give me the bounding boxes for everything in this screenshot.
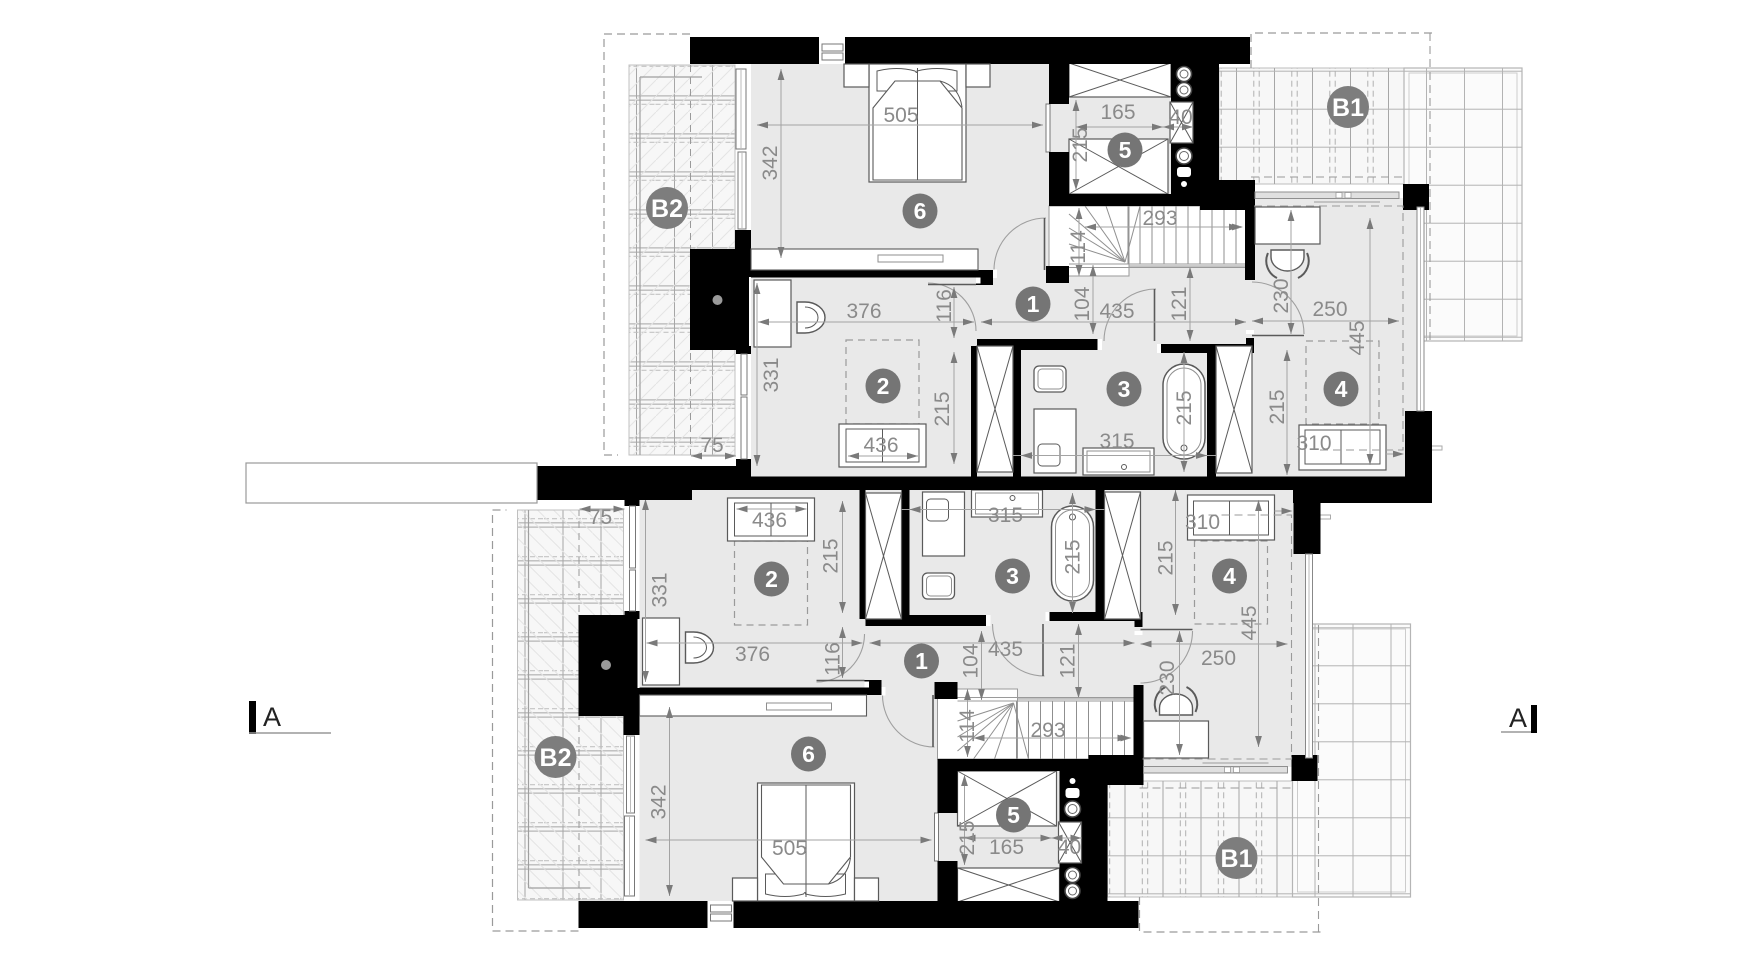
svg-text:315: 315 — [988, 504, 1023, 527]
svg-text:2: 2 — [765, 566, 778, 592]
svg-text:435: 435 — [988, 638, 1023, 661]
svg-text:250: 250 — [1312, 298, 1347, 321]
svg-text:445: 445 — [1346, 320, 1369, 355]
svg-text:215: 215 — [1062, 539, 1085, 574]
svg-text:165: 165 — [989, 836, 1024, 859]
svg-text:114: 114 — [956, 709, 979, 743]
svg-text:342: 342 — [648, 784, 671, 819]
svg-text:116: 116 — [822, 642, 845, 675]
svg-text:40: 40 — [1169, 106, 1192, 129]
svg-text:436: 436 — [752, 509, 787, 532]
svg-text:215: 215 — [1069, 127, 1092, 162]
svg-text:310: 310 — [1185, 511, 1220, 534]
svg-text:293: 293 — [1142, 207, 1177, 230]
svg-text:B1: B1 — [1221, 845, 1253, 873]
svg-text:B1: B1 — [1332, 94, 1364, 122]
svg-text:3: 3 — [1118, 376, 1131, 402]
svg-text:215: 215 — [956, 820, 979, 855]
svg-text:230: 230 — [1156, 660, 1179, 695]
svg-text:75: 75 — [700, 434, 723, 457]
svg-text:376: 376 — [846, 300, 881, 323]
svg-text:505: 505 — [772, 837, 807, 860]
svg-text:315: 315 — [1099, 430, 1134, 453]
svg-text:1: 1 — [915, 648, 928, 674]
svg-text:6: 6 — [914, 198, 927, 224]
svg-text:165: 165 — [1100, 101, 1135, 124]
svg-text:4: 4 — [1223, 563, 1236, 589]
svg-text:215: 215 — [820, 538, 843, 573]
svg-text:376: 376 — [735, 643, 770, 666]
svg-text:331: 331 — [760, 357, 783, 392]
svg-text:342: 342 — [759, 145, 782, 180]
svg-text:116: 116 — [933, 289, 956, 322]
svg-text:75: 75 — [589, 506, 612, 529]
svg-text:A: A — [1509, 703, 1527, 733]
svg-text:6: 6 — [802, 741, 815, 767]
svg-text:250: 250 — [1201, 647, 1236, 670]
svg-text:445: 445 — [1238, 605, 1261, 640]
svg-text:436: 436 — [863, 434, 898, 457]
svg-text:215: 215 — [931, 391, 954, 426]
svg-text:293: 293 — [1030, 719, 1065, 742]
svg-text:331: 331 — [649, 572, 672, 607]
svg-text:3: 3 — [1006, 563, 1019, 589]
svg-text:104: 104 — [1071, 286, 1094, 321]
svg-text:114: 114 — [1067, 230, 1090, 264]
svg-text:5: 5 — [1007, 802, 1020, 828]
svg-text:215: 215 — [1266, 389, 1289, 424]
svg-text:B2: B2 — [540, 744, 572, 772]
svg-text:230: 230 — [1270, 278, 1293, 313]
svg-text:40: 40 — [1058, 836, 1081, 859]
svg-text:B2: B2 — [651, 195, 683, 223]
svg-text:435: 435 — [1099, 300, 1134, 323]
svg-text:310: 310 — [1296, 432, 1331, 455]
svg-text:505: 505 — [883, 104, 918, 127]
svg-text:215: 215 — [1155, 540, 1178, 575]
svg-text:104: 104 — [960, 643, 983, 678]
svg-text:4: 4 — [1335, 376, 1348, 402]
svg-text:2: 2 — [877, 373, 890, 399]
svg-text:A: A — [263, 702, 281, 732]
svg-text:121: 121 — [1168, 286, 1191, 321]
svg-text:5: 5 — [1119, 137, 1132, 163]
svg-text:1: 1 — [1027, 291, 1040, 317]
svg-text:215: 215 — [1173, 390, 1196, 425]
svg-text:121: 121 — [1057, 643, 1080, 678]
